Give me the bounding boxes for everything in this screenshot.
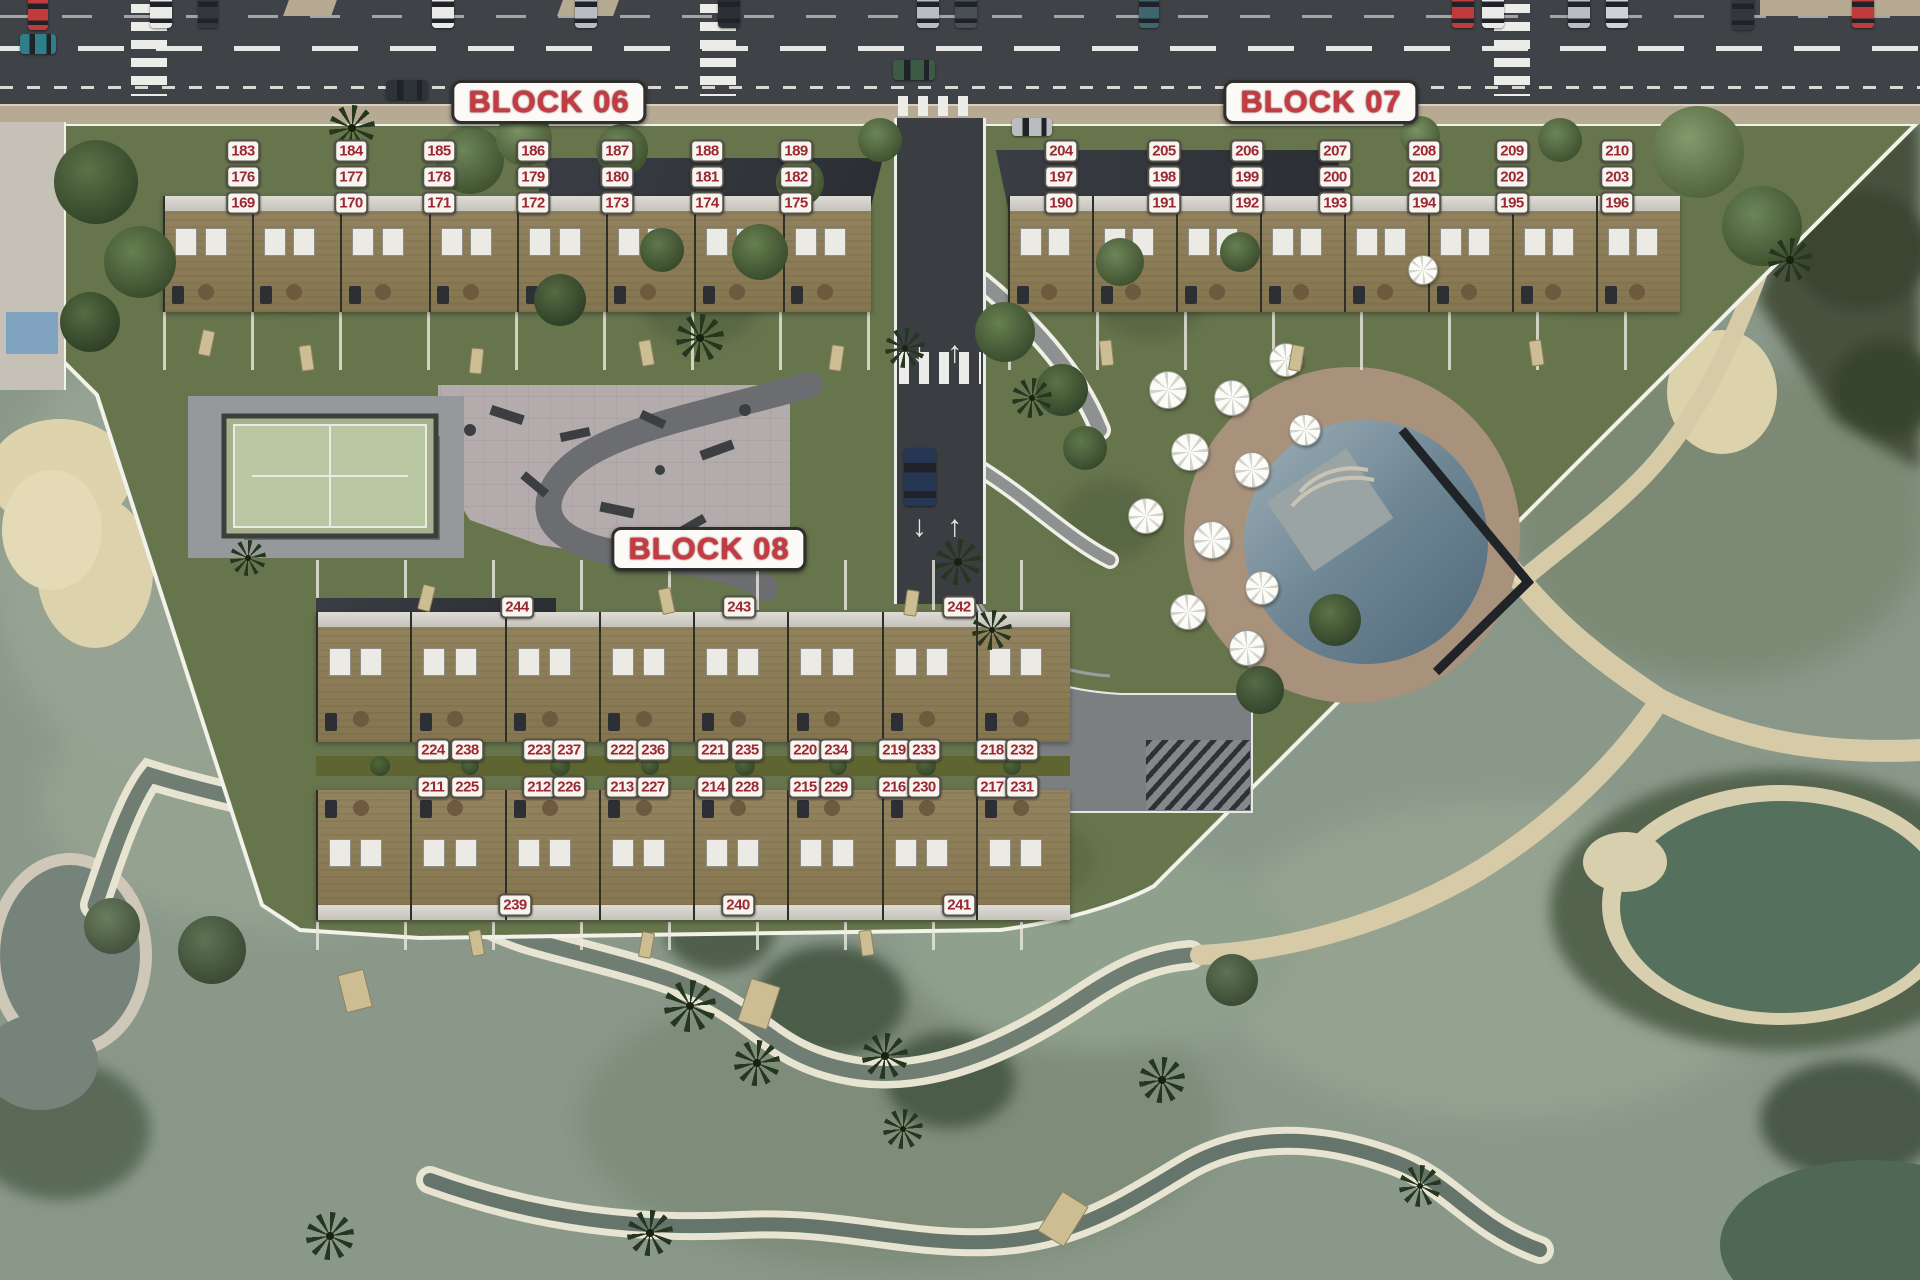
garden-paths <box>163 312 871 370</box>
communal-terrace <box>0 122 66 390</box>
roof-block06 <box>533 158 883 214</box>
lane-arrows: ↓ ↑ <box>897 510 983 544</box>
crosswalk <box>131 4 167 96</box>
parking-stalls <box>1146 740 1250 810</box>
padel-court <box>188 396 464 558</box>
crosswalk <box>898 96 976 116</box>
roof-block08 <box>316 598 556 632</box>
lane-divider-dotted <box>0 86 1920 89</box>
garden-paths <box>316 922 1070 950</box>
traffic-island <box>1760 0 1920 16</box>
small-pool <box>6 312 58 354</box>
traffic-island <box>283 0 337 16</box>
roof-block07 <box>996 150 1353 228</box>
traffic-island <box>557 0 619 16</box>
site-plan-map: ↓ ↑ ↓ ↑ BLOCK 06183184185186187188189176… <box>0 0 1920 1280</box>
crosswalk <box>1494 4 1530 96</box>
crosswalk <box>899 352 981 384</box>
courtyard-planter <box>316 756 1070 776</box>
lane-divider-dashed <box>0 46 1920 51</box>
crosswalk <box>700 4 736 96</box>
garden-paths <box>1008 312 1680 370</box>
main-road <box>0 0 1920 104</box>
access-road: ↓ ↑ ↓ ↑ <box>894 118 986 604</box>
